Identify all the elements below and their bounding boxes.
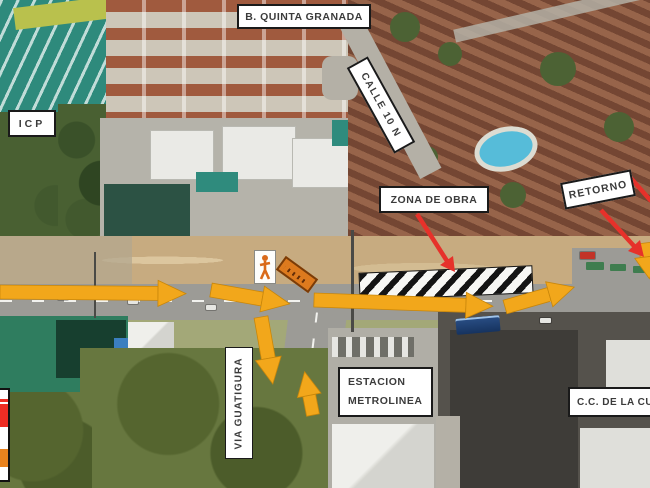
car [540,318,551,323]
car [128,299,138,304]
label-text: B. QUINTA GRANADA [245,11,363,23]
lane-marking [0,300,650,302]
car [58,295,68,300]
satellite-green-field [80,348,332,488]
label-text: RETORNO [568,178,629,201]
footbridge-pillar [351,230,354,332]
label-icp: ICP [8,110,56,137]
truck [580,252,595,259]
satellite-pavement-left [0,236,132,290]
tree-canopy [438,42,462,66]
bus-shelter [586,262,604,270]
satellite-mall-construction [450,330,578,488]
label-via-guatigura: VIA GUATIGURA [225,347,253,459]
bus-shelter [610,264,626,271]
satellite-sports-court [196,172,238,192]
label-line1: ESTACION [348,373,422,392]
label-centro-comercial: C.C. DE LA CUE [568,387,650,417]
satellite-station-building [332,424,434,488]
car [206,305,216,310]
label-text: VIA GUATIGURA [234,357,245,449]
legend-box [0,388,10,482]
tree-canopy [540,52,576,86]
legend-red-line [0,399,8,402]
satellite-green-field [0,392,92,488]
satellite-white-roof [580,428,650,488]
legend-orange-swatch [0,449,8,467]
satellite-green-roof [104,184,190,240]
label-text: ICP [19,118,46,130]
worker-ahead-sign [254,250,276,284]
legend-red-swatch [0,404,8,427]
traffic-detour-map: B. QUINTA GRANADA ICP CALLE 10 N ZONA DE… [0,0,650,488]
label-zona-de-obra: ZONA DE OBRA [379,186,489,213]
utility-pole [94,252,96,318]
label-quinta-granada: B. QUINTA GRANADA [237,4,371,29]
label-line2: METROLINEA [348,392,422,411]
tree-canopy [604,112,634,142]
label-text: C.C. DE LA CUE [577,397,650,408]
label-text: ZONA DE OBRA [391,194,478,206]
label-estacion-metrolinea: ESTACION METROLINEA [338,367,433,417]
satellite-service-street [436,416,460,488]
satellite-parking-row [332,337,414,357]
tree-canopy [390,12,420,42]
tree-canopy [500,182,526,208]
worker-figure-icon [257,253,273,281]
bus-shelter [633,266,645,273]
label-text: ESTACION METROLINEA [348,373,422,411]
